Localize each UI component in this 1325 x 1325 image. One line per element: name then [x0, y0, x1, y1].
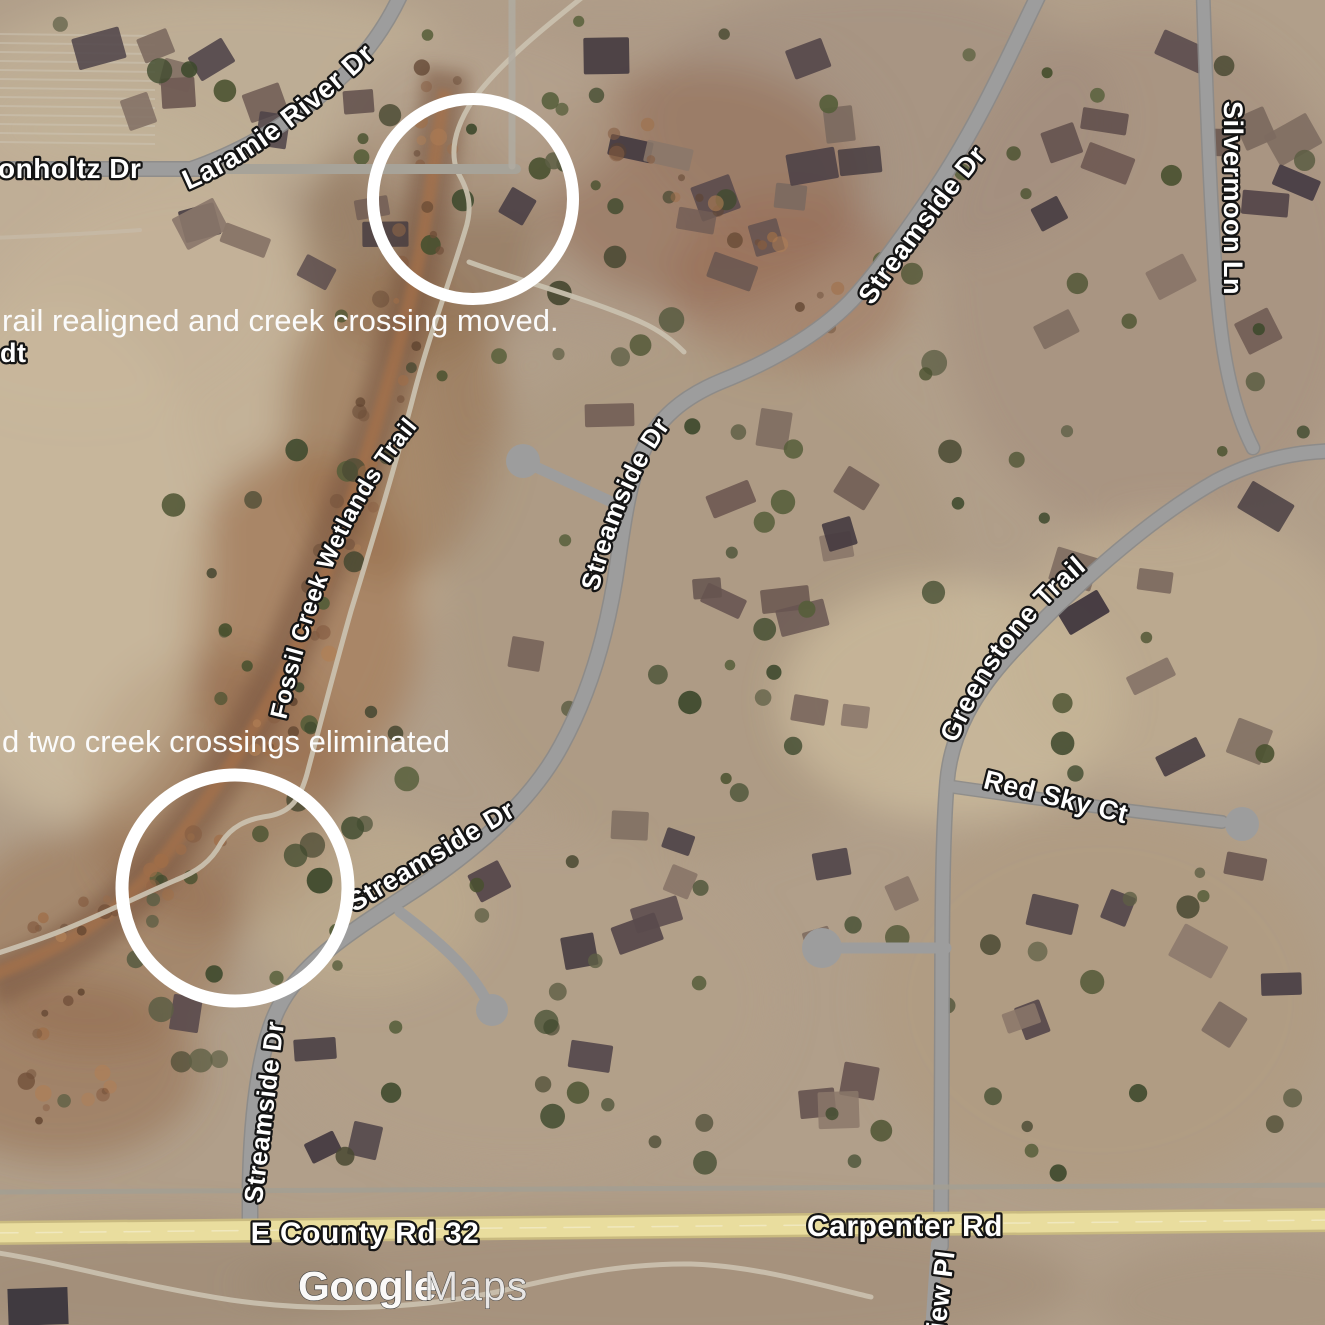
creek-rock: [162, 889, 174, 901]
tree: [678, 691, 701, 714]
tree: [559, 534, 571, 546]
tree: [1266, 1115, 1284, 1133]
tree: [1214, 56, 1235, 77]
tree: [381, 1083, 401, 1103]
building: [692, 577, 722, 600]
creek-rock: [35, 1085, 52, 1102]
tree: [870, 1120, 892, 1142]
tree: [406, 362, 417, 373]
culdesac-b: [802, 928, 842, 968]
creek-rock: [95, 1065, 111, 1081]
creek-rock: [38, 912, 49, 923]
tree: [952, 497, 965, 510]
tree: [475, 908, 490, 923]
creek-rock: [417, 136, 427, 146]
tree: [589, 88, 604, 103]
tree: [607, 198, 623, 214]
tree: [219, 623, 233, 637]
creek-rock: [398, 375, 409, 386]
creek-rock: [77, 926, 87, 936]
tree: [1253, 323, 1265, 335]
creek-rock: [608, 128, 620, 140]
tree: [146, 915, 159, 928]
creek-rock: [78, 989, 85, 996]
creek-rock: [758, 240, 768, 250]
tree: [938, 440, 962, 464]
tree: [784, 439, 803, 458]
tree: [1197, 890, 1209, 902]
tree: [207, 568, 217, 578]
culdesac-red-sky: [1225, 807, 1259, 841]
watermark: Google Maps: [298, 1263, 528, 1309]
tree: [242, 660, 253, 671]
building: [342, 89, 374, 115]
tree: [591, 180, 601, 190]
tree: [659, 307, 685, 333]
tree: [1021, 1121, 1032, 1132]
tree: [919, 367, 932, 380]
creek-rock: [78, 897, 89, 908]
tree: [693, 1151, 717, 1175]
tree: [784, 737, 802, 755]
building: [841, 704, 871, 729]
tree: [1067, 765, 1083, 781]
creek-rock: [727, 232, 743, 248]
tree: [181, 61, 197, 77]
tree: [1246, 372, 1265, 391]
creek-rock: [435, 246, 444, 255]
tree: [1052, 693, 1072, 713]
tree: [210, 1050, 228, 1068]
tree: [826, 1107, 839, 1120]
tree: [1129, 1084, 1147, 1102]
creek-rock: [647, 155, 656, 164]
tree: [1090, 88, 1105, 103]
creek-rock: [641, 118, 655, 132]
tree: [567, 1082, 589, 1104]
tree: [1006, 146, 1020, 160]
culdesac-a: [506, 444, 540, 478]
tree: [1028, 942, 1048, 962]
building: [585, 403, 635, 427]
road-label-bonholtz: onholtz Dr: [0, 153, 141, 184]
tree: [725, 660, 736, 671]
culdesac-c: [476, 994, 508, 1026]
creek-rock: [609, 146, 625, 162]
creek-rock: [176, 844, 187, 855]
creek-rock: [430, 231, 437, 238]
creek-rock: [453, 76, 462, 85]
tree: [630, 334, 652, 356]
creek-rock: [358, 410, 370, 422]
tree: [984, 1087, 1002, 1105]
tree: [379, 104, 401, 126]
building: [817, 1091, 859, 1129]
creek-rock: [63, 996, 74, 1007]
tree: [755, 689, 772, 706]
tree: [693, 880, 709, 896]
tree: [588, 954, 603, 969]
tree: [1294, 150, 1315, 171]
building: [293, 1037, 337, 1062]
tree: [844, 916, 861, 933]
tree: [566, 855, 579, 868]
tree: [611, 347, 630, 366]
tree: [754, 512, 775, 533]
building: [583, 37, 629, 74]
tree: [692, 976, 707, 991]
creek-rock: [154, 854, 168, 868]
tree: [1297, 426, 1310, 439]
building: [838, 146, 883, 177]
tree: [573, 16, 584, 27]
tree: [1067, 273, 1088, 294]
tree: [922, 581, 945, 604]
road-label-e-county-rd-32: E County Rd 32: [251, 1217, 480, 1250]
tree: [189, 1049, 213, 1073]
creek-rock: [831, 282, 844, 295]
tree: [214, 80, 237, 103]
tree: [1195, 868, 1206, 879]
road-label-carpenter-rd: Carpenter Rd: [807, 1210, 1003, 1243]
annotation-trail-realigned: rail realigned and creek crossing moved.: [2, 303, 559, 338]
tree: [394, 767, 419, 792]
tree: [1283, 1089, 1302, 1108]
tree: [491, 348, 507, 364]
tree: [819, 95, 838, 114]
building: [774, 183, 808, 211]
google-logo[interactable]: Google: [298, 1263, 436, 1309]
building: [611, 810, 649, 841]
tree: [549, 983, 567, 1001]
creek-rock: [81, 1093, 95, 1107]
creek-rock: [421, 81, 432, 92]
tree: [1009, 452, 1025, 468]
creek-rock: [695, 194, 703, 202]
tree: [963, 48, 976, 61]
road-label-cutoff-dt: dt: [0, 338, 26, 368]
tree: [466, 124, 477, 135]
tree: [307, 868, 333, 894]
tree: [358, 133, 369, 144]
building: [507, 636, 544, 672]
creek-rock: [708, 195, 724, 211]
tree: [535, 1076, 551, 1092]
barn-building: [7, 1287, 68, 1325]
tree: [980, 934, 1001, 955]
tree: [148, 997, 173, 1022]
tree: [389, 1021, 402, 1034]
tree: [1050, 1164, 1067, 1181]
tree: [798, 601, 815, 618]
tree: [649, 1135, 662, 1148]
tree: [147, 58, 172, 83]
creek-rock: [27, 921, 39, 933]
tree: [1020, 188, 1031, 199]
tree: [162, 493, 186, 517]
tree: [731, 424, 747, 440]
tree: [285, 439, 308, 462]
creek-rock: [421, 201, 433, 213]
tree: [214, 692, 227, 705]
annotation-crossings-eliminated: d two creek crossings eliminated: [2, 724, 450, 759]
tree: [422, 29, 434, 41]
tree: [848, 1154, 862, 1168]
creek-rock: [103, 895, 110, 902]
creek-rock: [96, 1088, 110, 1102]
tree: [695, 1114, 713, 1132]
creek-rock: [414, 59, 430, 75]
tree: [1025, 1144, 1039, 1158]
creek-rock: [795, 302, 805, 312]
tree: [766, 665, 781, 680]
creek-rock: [32, 1029, 42, 1039]
tree: [53, 17, 68, 32]
tree: [753, 618, 776, 641]
tree: [57, 1094, 71, 1108]
creek-rock: [185, 825, 202, 842]
building: [1261, 972, 1302, 996]
tree: [552, 348, 564, 360]
tree: [556, 103, 569, 116]
tree: [1039, 513, 1050, 524]
creek-rock: [430, 129, 447, 146]
tree: [1123, 892, 1137, 906]
tree: [1122, 314, 1137, 329]
tree: [354, 149, 370, 165]
creek-rock: [316, 625, 331, 640]
tree: [771, 490, 795, 514]
tree: [604, 246, 627, 269]
tree: [719, 28, 730, 39]
tree: [470, 878, 485, 893]
tree: [1255, 744, 1274, 763]
satellite-map-canvas[interactable]: onholtz Dr Laramie River Dr Streamside D…: [0, 0, 1325, 1325]
tree: [1080, 970, 1104, 994]
road-label-silvermoon: Silvermoon Ln: [1218, 101, 1248, 295]
creek-rock: [321, 646, 337, 662]
tree: [341, 817, 364, 840]
creek-rock: [35, 1117, 43, 1125]
tree: [684, 418, 700, 434]
tree: [726, 547, 738, 559]
tree: [437, 370, 448, 381]
tree: [540, 1104, 565, 1129]
creek-rock: [41, 1010, 48, 1017]
creek-rock: [817, 292, 824, 299]
tree: [534, 1010, 558, 1034]
creek-rock: [671, 192, 681, 202]
creek-rock: [678, 174, 685, 181]
tree: [365, 706, 377, 718]
tree: [601, 1098, 614, 1111]
creek-rock: [43, 1104, 50, 1111]
tree: [1061, 425, 1073, 437]
tree: [284, 844, 308, 868]
creek-rock: [392, 223, 406, 237]
tree: [205, 965, 222, 982]
tree: [1042, 67, 1053, 78]
creek-rock: [414, 150, 421, 157]
tree: [1051, 732, 1075, 756]
creek-rock: [411, 341, 421, 351]
tree: [1176, 895, 1199, 918]
tree: [336, 1147, 355, 1166]
tree: [1141, 632, 1153, 644]
creek-rock: [772, 236, 788, 252]
tree: [252, 826, 269, 843]
creek-rock: [18, 1073, 35, 1090]
tree: [1217, 446, 1228, 457]
tree: [730, 783, 749, 802]
tree: [721, 773, 732, 784]
tree: [269, 971, 283, 985]
maps-wordmark: Maps: [424, 1263, 528, 1309]
tree: [1161, 165, 1182, 186]
creek-rock: [397, 395, 405, 403]
tree: [332, 960, 343, 971]
map-svg: onholtz Dr Laramie River Dr Streamside D…: [0, 0, 1325, 1325]
tree: [244, 491, 262, 509]
tree: [648, 665, 668, 685]
